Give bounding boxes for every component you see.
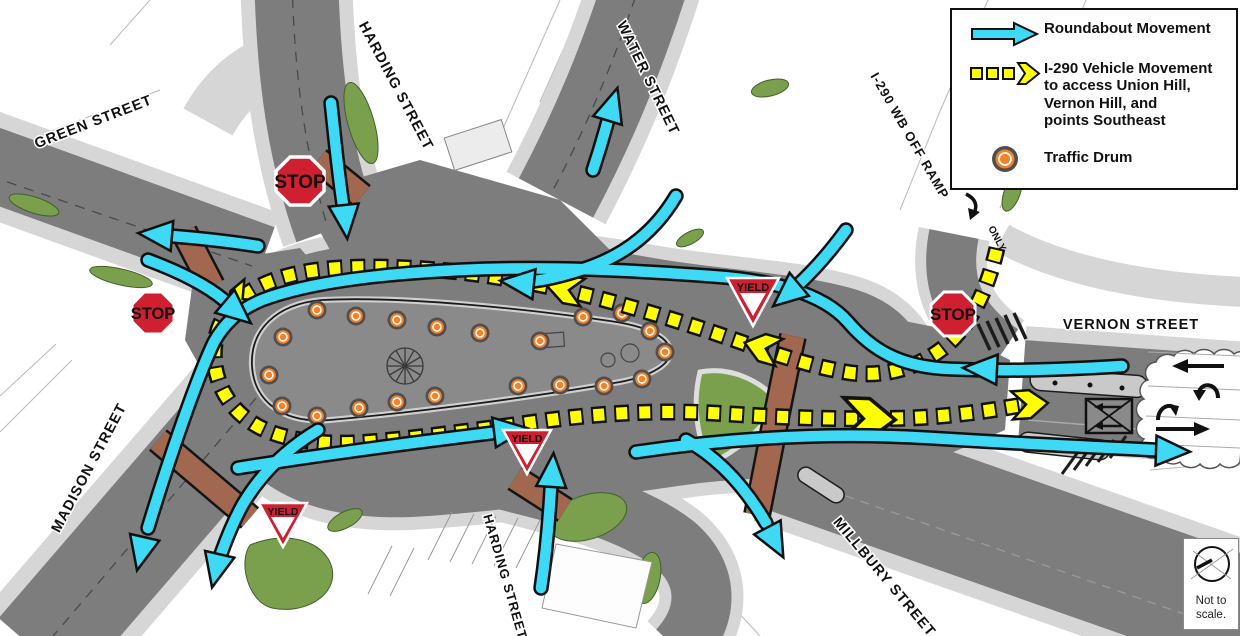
- svg-text:STOP: STOP: [274, 172, 326, 193]
- traffic-drum-icon: [966, 143, 1044, 174]
- stop-sign-i290-ramp: STOP: [930, 292, 976, 336]
- legend-label: Roundabout Movement: [1044, 20, 1211, 37]
- note-line: scale.: [1184, 608, 1238, 622]
- legend-item-i290-movement: I-290 Vehicle Movement to access Union H…: [966, 60, 1226, 130]
- svg-text:YIELD: YIELD: [512, 433, 543, 445]
- legend-item-traffic-drum: Traffic Drum: [966, 143, 1226, 174]
- i290-route-arrow-icon: [966, 60, 1044, 85]
- vernon-street-label: VERNON STREET: [1063, 317, 1199, 333]
- not-to-scale-note: Not to scale.: [1183, 538, 1239, 630]
- legend-label: to access Union Hill,: [1044, 77, 1212, 94]
- roundabout-arrow-icon: [966, 20, 1044, 47]
- north-arrow-icon: [1185, 539, 1237, 587]
- svg-text:YIELD: YIELD: [268, 506, 299, 518]
- note-line: Not to: [1184, 594, 1238, 608]
- island-gazebo-structure: [387, 348, 423, 384]
- traffic-plan-diagram: ONLY: [0, 0, 1240, 636]
- hatched-box: [1086, 399, 1132, 433]
- legend-item-roundabout-movement: Roundabout Movement: [966, 20, 1226, 47]
- stop-sign-green-street: STOP: [131, 292, 176, 334]
- svg-text:YIELD: YIELD: [737, 282, 769, 294]
- legend-label: Traffic Drum: [1044, 149, 1132, 166]
- svg-text:STOP: STOP: [930, 305, 976, 324]
- stop-sign-harding-top: STOP: [274, 157, 326, 205]
- legend: Roundabout Movement I-290 Vehicle Moveme…: [950, 8, 1238, 190]
- legend-label: points Southeast: [1044, 112, 1212, 129]
- svg-text:STOP: STOP: [131, 305, 176, 323]
- legend-label: Vernon Hill, and: [1044, 95, 1212, 112]
- legend-label: I-290 Vehicle Movement: [1044, 60, 1212, 77]
